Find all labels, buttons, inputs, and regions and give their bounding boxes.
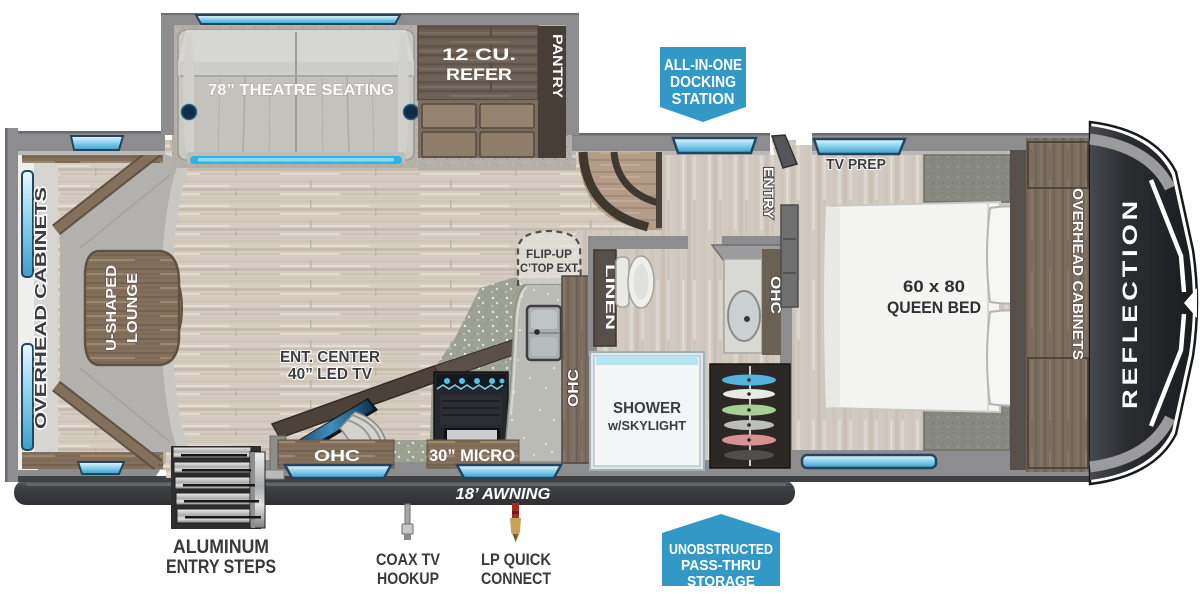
- svg-text:COAX TV: COAX TV: [376, 551, 440, 569]
- svg-text:REFER: REFER: [446, 65, 512, 84]
- svg-text:ALL-IN-ONE: ALL-IN-ONE: [664, 57, 742, 74]
- svg-text:CONNECT: CONNECT: [481, 570, 551, 588]
- svg-text:PANTRY: PANTRY: [550, 34, 566, 99]
- svg-text:ALUMINUM: ALUMINUM: [173, 537, 269, 558]
- svg-text:30” MICRO: 30” MICRO: [429, 447, 515, 465]
- svg-text:PASS-THRU: PASS-THRU: [681, 557, 761, 574]
- svg-text:OHC: OHC: [314, 448, 361, 465]
- svg-text:ENTRY STEPS: ENTRY STEPS: [166, 557, 276, 578]
- svg-text:OVERHEAD CABINETS: OVERHEAD CABINETS: [1069, 188, 1086, 360]
- svg-text:U-SHAPED: U-SHAPED: [103, 265, 120, 351]
- svg-text:LP QUICK: LP QUICK: [481, 551, 551, 569]
- svg-text:SHOWER: SHOWER: [613, 400, 681, 417]
- svg-text:ENT. CENTER: ENT. CENTER: [280, 349, 380, 366]
- svg-text:STORAGE: STORAGE: [687, 573, 755, 590]
- svg-text:STATION: STATION: [672, 91, 735, 108]
- svg-text:ENTRY: ENTRY: [761, 167, 776, 219]
- svg-text:OHC: OHC: [565, 369, 582, 407]
- svg-text:LINEN: LINEN: [603, 264, 615, 330]
- svg-text:OVERHEAD CABINETS: OVERHEAD CABINETS: [33, 187, 50, 429]
- svg-text:60 x 80: 60 x 80: [903, 277, 965, 296]
- svg-text:12 CU.: 12 CU.: [442, 45, 516, 64]
- svg-text:LOUNGE: LOUNGE: [124, 273, 141, 343]
- svg-text:DOCKING: DOCKING: [670, 74, 736, 91]
- svg-text:C’TOP EXT.: C’TOP EXT.: [520, 261, 580, 275]
- svg-text:REFLECTION: REFLECTION: [1119, 197, 1142, 409]
- svg-text:40” LED TV: 40” LED TV: [288, 366, 372, 383]
- svg-text:FLIP-UP: FLIP-UP: [526, 247, 572, 261]
- svg-text:78” THEATRE SEATING: 78” THEATRE SEATING: [208, 82, 394, 99]
- svg-text:TV PREP: TV PREP: [826, 156, 886, 173]
- svg-text:18’ AWNING: 18’ AWNING: [456, 486, 551, 503]
- svg-text:QUEEN BED: QUEEN BED: [887, 298, 981, 317]
- svg-text:HOOKUP: HOOKUP: [377, 570, 439, 588]
- svg-text:UNOBSTRUCTED: UNOBSTRUCTED: [669, 541, 773, 558]
- svg-text:w/SKYLIGHT: w/SKYLIGHT: [607, 418, 686, 433]
